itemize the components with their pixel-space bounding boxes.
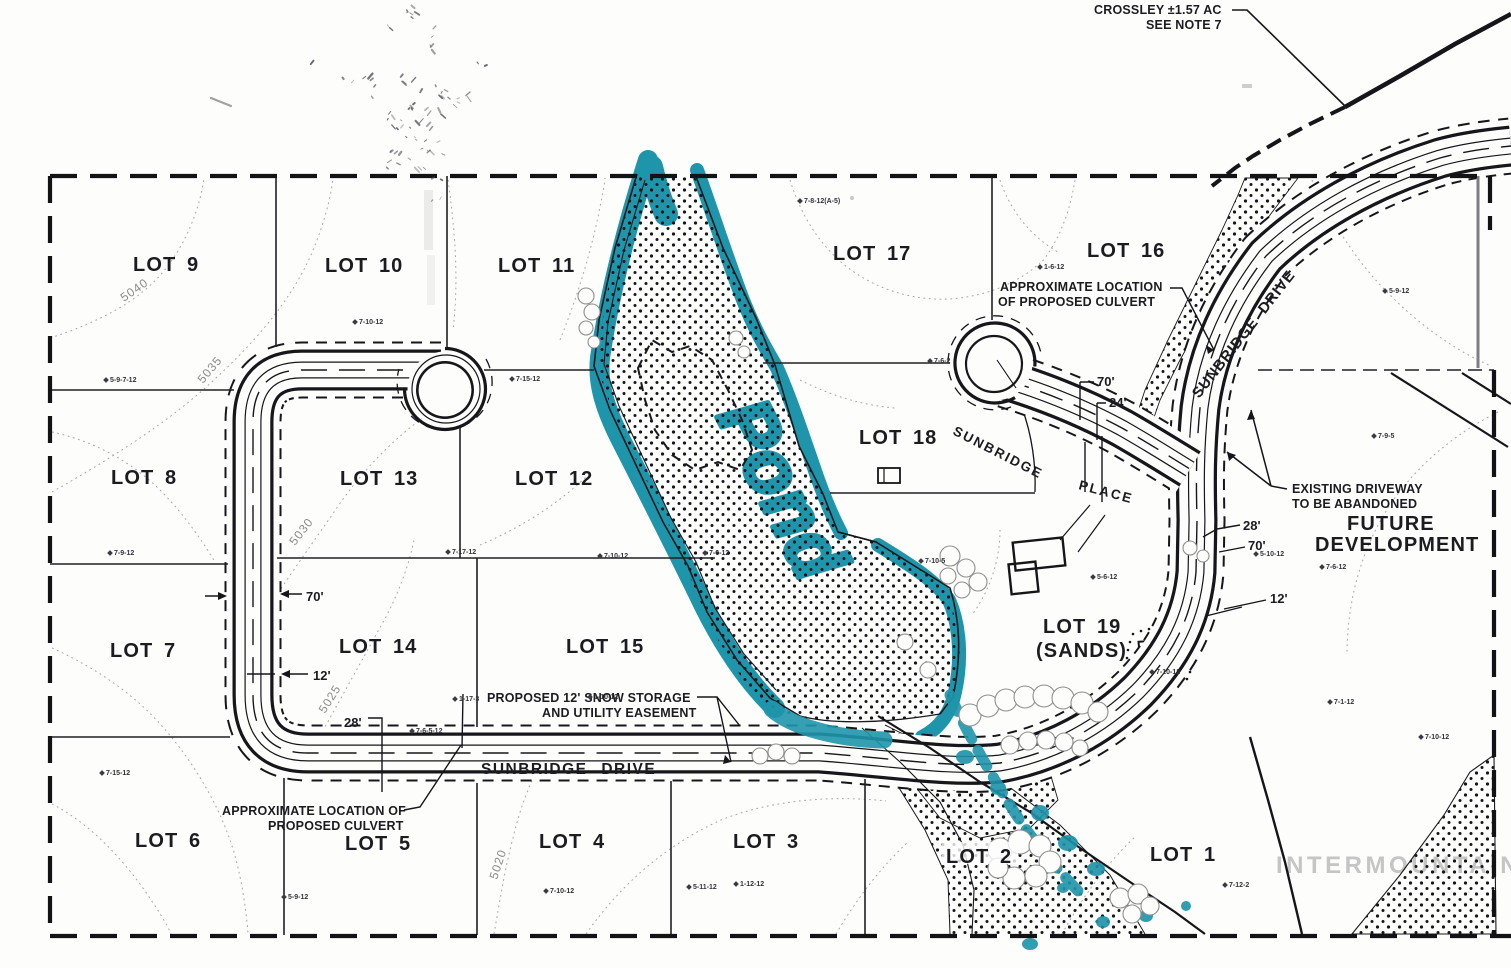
svg-text:5-9-12: 5-9-12 [1389,288,1409,295]
svg-text:1-12-12: 1-12-12 [740,881,764,888]
svg-text:LOT 16: LOT 16 [1087,240,1165,262]
svg-text:LOT 6: LOT 6 [135,830,201,852]
svg-text:SEE NOTE 7: SEE NOTE 7 [1146,18,1222,32]
svg-text:AND UTILITY EASEMENT: AND UTILITY EASEMENT [542,706,697,720]
svg-text:5-6-12: 5-6-12 [1097,574,1117,581]
svg-text:7-10-12: 7-10-12 [604,553,628,560]
svg-text:7-15-12: 7-15-12 [106,770,130,777]
svg-text:24': 24' [1109,395,1127,410]
svg-text:FUTURE: FUTURE [1347,513,1435,535]
svg-text:LOT 9: LOT 9 [133,254,199,276]
svg-text:1-17-3: 1-17-3 [459,696,479,703]
svg-text:LOT 14: LOT 14 [339,636,417,658]
svg-text:APPROXIMATE LOCATION OF: APPROXIMATE LOCATION OF [222,804,406,818]
svg-text:7-12-2: 7-12-2 [1229,882,1249,889]
svg-text:LOT 1: LOT 1 [1150,844,1216,866]
svg-text:7-10-12: 7-10-12 [1156,669,1180,676]
svg-text:LOT 4: LOT 4 [539,831,605,853]
svg-text:DEVELOPMENT: DEVELOPMENT [1315,534,1479,556]
svg-text:7-6-12: 7-6-12 [709,550,729,557]
svg-text:APPROXIMATE LOCATION: APPROXIMATE LOCATION [1000,280,1163,294]
svg-text:OF PROPOSED CULVERT: OF PROPOSED CULVERT [998,295,1155,309]
svg-text:12': 12' [313,668,331,683]
svg-text:7-8-12(A-5): 7-8-12(A-5) [804,198,840,205]
svg-text:7-10-5: 7-10-5 [925,558,945,565]
svg-text:5-9-7-12: 5-9-7-12 [110,377,137,384]
svg-text:LOT 5: LOT 5 [345,833,411,855]
svg-text:7-6-12: 7-6-12 [1326,564,1346,571]
svg-text:7-9-5: 7-9-5 [1378,433,1394,440]
svg-text:LOT 12: LOT 12 [515,468,593,490]
svg-text:7-1-12: 7-1-12 [1334,699,1354,706]
svg-text:LOT 17: LOT 17 [833,243,911,265]
svg-text:7-10-12: 7-10-12 [359,319,383,326]
svg-text:(SANDS): (SANDS) [1036,640,1127,662]
svg-text:LOT 15: LOT 15 [566,636,644,658]
svg-text:LOT 2: LOT 2 [946,846,1012,868]
svg-text:PROPOSED CULVERT: PROPOSED CULVERT [268,819,404,833]
svg-text:LOT 13: LOT 13 [340,468,418,490]
svg-text:LOT 7: LOT 7 [110,640,176,662]
svg-text:7-6-5-12: 7-6-5-12 [416,728,443,735]
svg-text:7-6-2: 7-6-2 [934,358,950,365]
svg-text:70': 70' [306,589,324,604]
svg-text:7-17-12: 7-17-12 [452,549,476,556]
svg-text:28': 28' [1243,518,1261,533]
svg-text:7-9-12: 7-9-12 [114,550,134,557]
svg-text:7-10-12: 7-10-12 [550,888,574,895]
svg-text:7-15-12: 7-15-12 [516,376,540,383]
svg-text:TO BE ABANDONED: TO BE ABANDONED [1292,497,1417,511]
svg-text:LOT 19: LOT 19 [1043,616,1121,638]
svg-text:SUNBRIDGE DRIVE: SUNBRIDGE DRIVE [481,761,656,778]
svg-text:LOT 18: LOT 18 [859,427,937,449]
svg-text:LOT 11: LOT 11 [498,255,575,277]
svg-text:5-11-12: 5-11-12 [693,884,717,891]
svg-text:1-6-12: 1-6-12 [1044,264,1064,271]
svg-text:LOT 8: LOT 8 [111,467,177,489]
svg-text:5-10-12: 5-10-12 [1260,551,1284,558]
svg-text:70': 70' [1097,374,1115,389]
svg-text:5-9-12: 5-9-12 [288,894,308,901]
svg-text:LOT 3: LOT 3 [733,831,799,853]
svg-text:CROSSLEY ±1.57 AC: CROSSLEY ±1.57 AC [1094,3,1222,17]
svg-text:LOT 10: LOT 10 [325,255,403,277]
svg-text:28': 28' [344,715,362,730]
svg-text:1-10-12: 1-10-12 [594,694,618,701]
svg-text:EXISTING DRIVEWAY: EXISTING DRIVEWAY [1292,482,1423,496]
svg-text:12': 12' [1270,591,1288,606]
svg-text:7-10-12: 7-10-12 [1425,734,1449,741]
